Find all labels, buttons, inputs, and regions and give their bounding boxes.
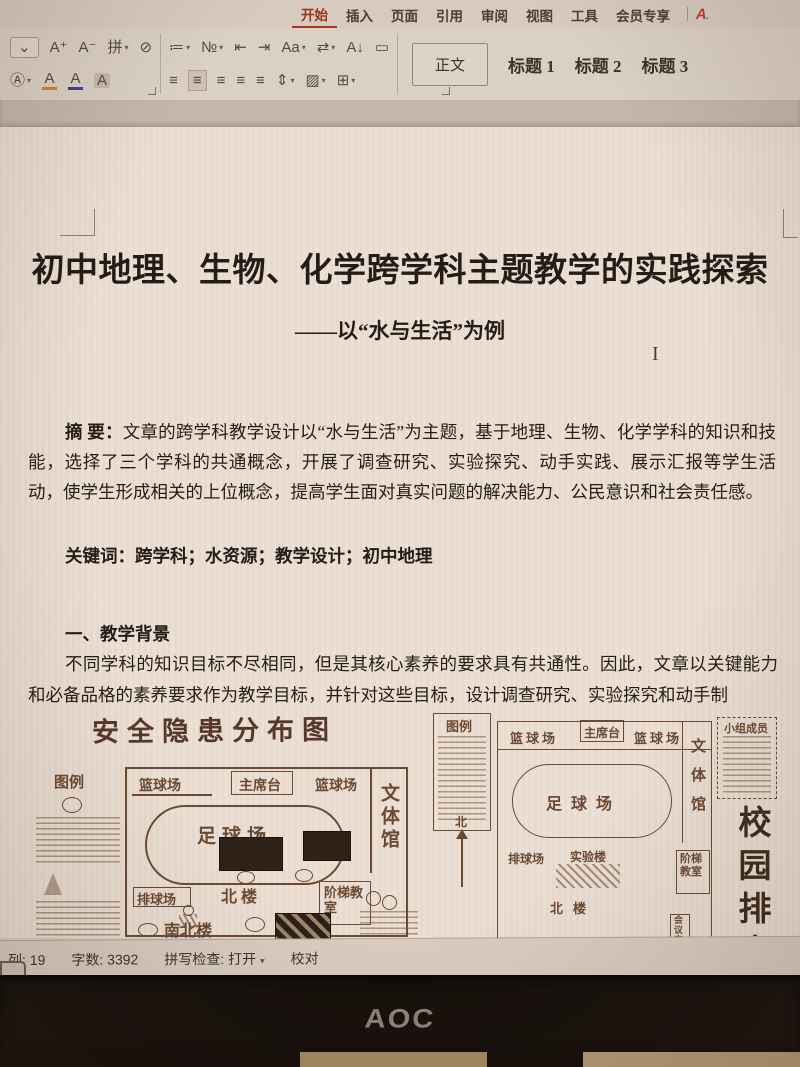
numbered-list-icon[interactable]: №▾ <box>201 40 223 55</box>
paragraph-dialog-launcher-icon[interactable] <box>442 87 450 95</box>
style-heading1[interactable]: 标题 1 <box>508 52 555 77</box>
font-dialog-launcher-icon[interactable] <box>148 87 156 95</box>
clear-format-icon[interactable]: ⊘ <box>139 40 152 55</box>
style-normal[interactable]: 正文 <box>412 43 488 86</box>
align-right-icon[interactable]: ≡ <box>217 73 226 88</box>
tab-divider <box>687 7 688 21</box>
manhole-sketch <box>295 869 313 882</box>
increase-indent-icon[interactable]: ⇥ <box>258 40 271 55</box>
ibeam-cursor: I <box>652 343 659 366</box>
style-gallery: 正文 标题 1 标题 2 标题 3 <box>412 31 688 97</box>
tab-member[interactable]: 会员专享 <box>607 1 679 27</box>
body-paragraph: 不同学科的知识目标不尽相同，但是其核心素养的要求具有共通性。因此，文章以关键能力… <box>28 649 778 711</box>
right-map-outline: 篮球场 主席台 篮球场 文体馆 足球场 排球场 实验楼 北楼 阶梯教室 会议室 <box>497 721 712 939</box>
highlight-color-icon[interactable]: A <box>42 71 57 90</box>
document-background-strip <box>0 100 800 127</box>
tab-page[interactable]: 页面 <box>382 1 427 27</box>
abstract-paragraph: 摘 要：文章的跨学科教学设计以“水与生活”为主题，基于地理、生物、化学学科的知识… <box>28 417 776 507</box>
bullet-list-icon[interactable]: ≔▾ <box>169 40 190 55</box>
legend-symbol-sketch <box>62 797 82 813</box>
status-word-count[interactable]: 字数: 3392 <box>71 949 138 969</box>
monitor-bezel: AOC <box>0 975 800 1048</box>
home-ribbon-toolbar: ⌄ A⁺ A⁻ 拼▾ ⊘ Ⓐ▾ A A A ≔▾ №▾ <box>0 28 800 100</box>
doc-title: 初中地理、生物、化学跨学科主题教学的实践探索 <box>0 243 800 291</box>
desk-background <box>0 1048 800 1067</box>
phonetic-guide-icon[interactable]: 拼▾ <box>107 40 128 55</box>
margin-crop-mark-left <box>60 209 95 236</box>
wordart-icon[interactable]: Ⓐ▾ <box>10 73 31 88</box>
decrease-indent-icon[interactable]: ⇤ <box>234 40 247 55</box>
lab-building-sketch <box>556 864 620 888</box>
tab-references[interactable]: 引用 <box>427 1 472 27</box>
bicycle-sketch <box>382 895 397 910</box>
monitor-brand-logo: AOC <box>0 1004 800 1034</box>
tab-view[interactable]: 视图 <box>517 1 562 27</box>
borders-icon[interactable]: ⊞▾ <box>337 73 356 88</box>
figure-left-title: 安全隐患分布图 <box>92 708 337 750</box>
tab-review[interactable]: 审阅 <box>472 1 517 27</box>
tab-insert[interactable]: 插入 <box>337 1 382 27</box>
manhole-sketch <box>138 923 158 937</box>
font-group: ⌄ A⁺ A⁻ 拼▾ ⊘ Ⓐ▾ A A A <box>4 31 158 97</box>
group-divider <box>397 34 398 94</box>
justify-icon[interactable]: ≡ <box>236 73 245 88</box>
status-spell-check[interactable]: 拼写检查: 打开▾ <box>164 948 264 969</box>
figure-safety-hazard-map: 安全隐患分布图 图例 篮球场 主席台 篮球场 文体馆 足球场 <box>30 705 422 938</box>
group-divider <box>160 34 161 94</box>
bicycle-notes-scribble <box>360 911 418 937</box>
members-box: 小组成员 <box>717 717 777 799</box>
embedded-photo <box>219 837 283 871</box>
shading-icon[interactable]: ▨▾ <box>305 73 325 88</box>
character-shading-icon[interactable]: A <box>94 73 110 88</box>
background-patch <box>300 1052 487 1067</box>
north-arrow-head <box>456 829 468 839</box>
north-arrow <box>461 835 463 887</box>
legend-notes-scribble <box>36 817 120 865</box>
line-spacing-icon[interactable]: ⇕▾ <box>276 73 295 88</box>
change-case-icon[interactable]: Aa▾ <box>281 40 305 55</box>
show-marks-icon[interactable]: ▭ <box>375 40 389 55</box>
wps-ai-icon[interactable]: A. <box>694 6 711 23</box>
legend-notes-scribble <box>36 901 120 937</box>
style-heading3[interactable]: 标题 3 <box>642 52 689 77</box>
legend-symbol-sketch <box>44 873 62 895</box>
font-box-collapse-icon[interactable]: ⌄ <box>10 37 39 58</box>
north-label: 北 <box>455 813 467 830</box>
background-patch <box>583 1052 800 1067</box>
tab-tools[interactable]: 工具 <box>562 1 607 27</box>
align-center-icon[interactable]: ≡ <box>189 71 206 90</box>
south-north-building-label: 南北楼 <box>164 917 212 941</box>
section-heading: 一、教学背景 <box>65 621 170 646</box>
font-color-icon[interactable]: A <box>68 71 83 90</box>
margin-crop-mark-right <box>783 209 798 238</box>
document-page[interactable]: 初中地理、生物、化学跨学科主题教学的实践探索 ——以“水与生活”为例 I 摘 要… <box>0 127 800 938</box>
decrease-font-icon[interactable]: A⁻ <box>79 40 97 55</box>
distribute-icon[interactable]: ≡ <box>256 73 265 88</box>
monitor-photo: 开始 插入 页面 引用 审阅 视图 工具 会员专享 A. ⌄ A⁺ A⁻ 拼▾ … <box>0 0 800 1067</box>
figure-campus-drainage-map: 图例 北 篮球场 主席台 篮球场 文体馆 足球场 排球场 实 <box>425 705 800 943</box>
manhole-sketch <box>245 917 265 932</box>
increase-font-icon[interactable]: A⁺ <box>50 40 68 55</box>
doc-subtitle: ——以“水与生活”为例 <box>0 315 800 345</box>
style-heading2[interactable]: 标题 2 <box>575 52 622 77</box>
status-bar: 列: 19 字数: 3392 拼写检查: 打开▾ 校对 <box>0 936 800 978</box>
ribbon-tab-bar: 开始 插入 页面 引用 审阅 视图 工具 会员专享 A. <box>0 0 800 28</box>
sort-icon[interactable]: A↓ <box>346 40 364 55</box>
gym-label: 文体馆 <box>687 738 708 825</box>
text-direction-icon[interactable]: ⇄▾ <box>317 40 336 55</box>
embedded-photo <box>303 831 351 861</box>
align-left-icon[interactable]: ≡ <box>169 73 178 88</box>
keywords-line: 关键词：跨学科；水资源；教学设计；初中地理 <box>65 543 433 568</box>
gym-label: 文体馆 <box>375 783 402 852</box>
paragraph-group: ≔▾ №▾ ⇤ ⇥ Aa▾ ⇄▾ A↓ ▭ ≡ ≡ ≡ ≡ ≡ ⇕▾ ▨▾ <box>163 31 395 97</box>
tab-home[interactable]: 开始 <box>292 0 337 29</box>
bicycle-sketch <box>366 891 381 906</box>
abstract-label: 摘 要： <box>65 422 123 442</box>
wps-window: 开始 插入 页面 引用 审阅 视图 工具 会员专享 A. ⌄ A⁺ A⁻ 拼▾ … <box>0 0 800 975</box>
figure-left-legend-label: 图例 <box>54 771 84 792</box>
status-proofread[interactable]: 校对 <box>291 948 319 968</box>
